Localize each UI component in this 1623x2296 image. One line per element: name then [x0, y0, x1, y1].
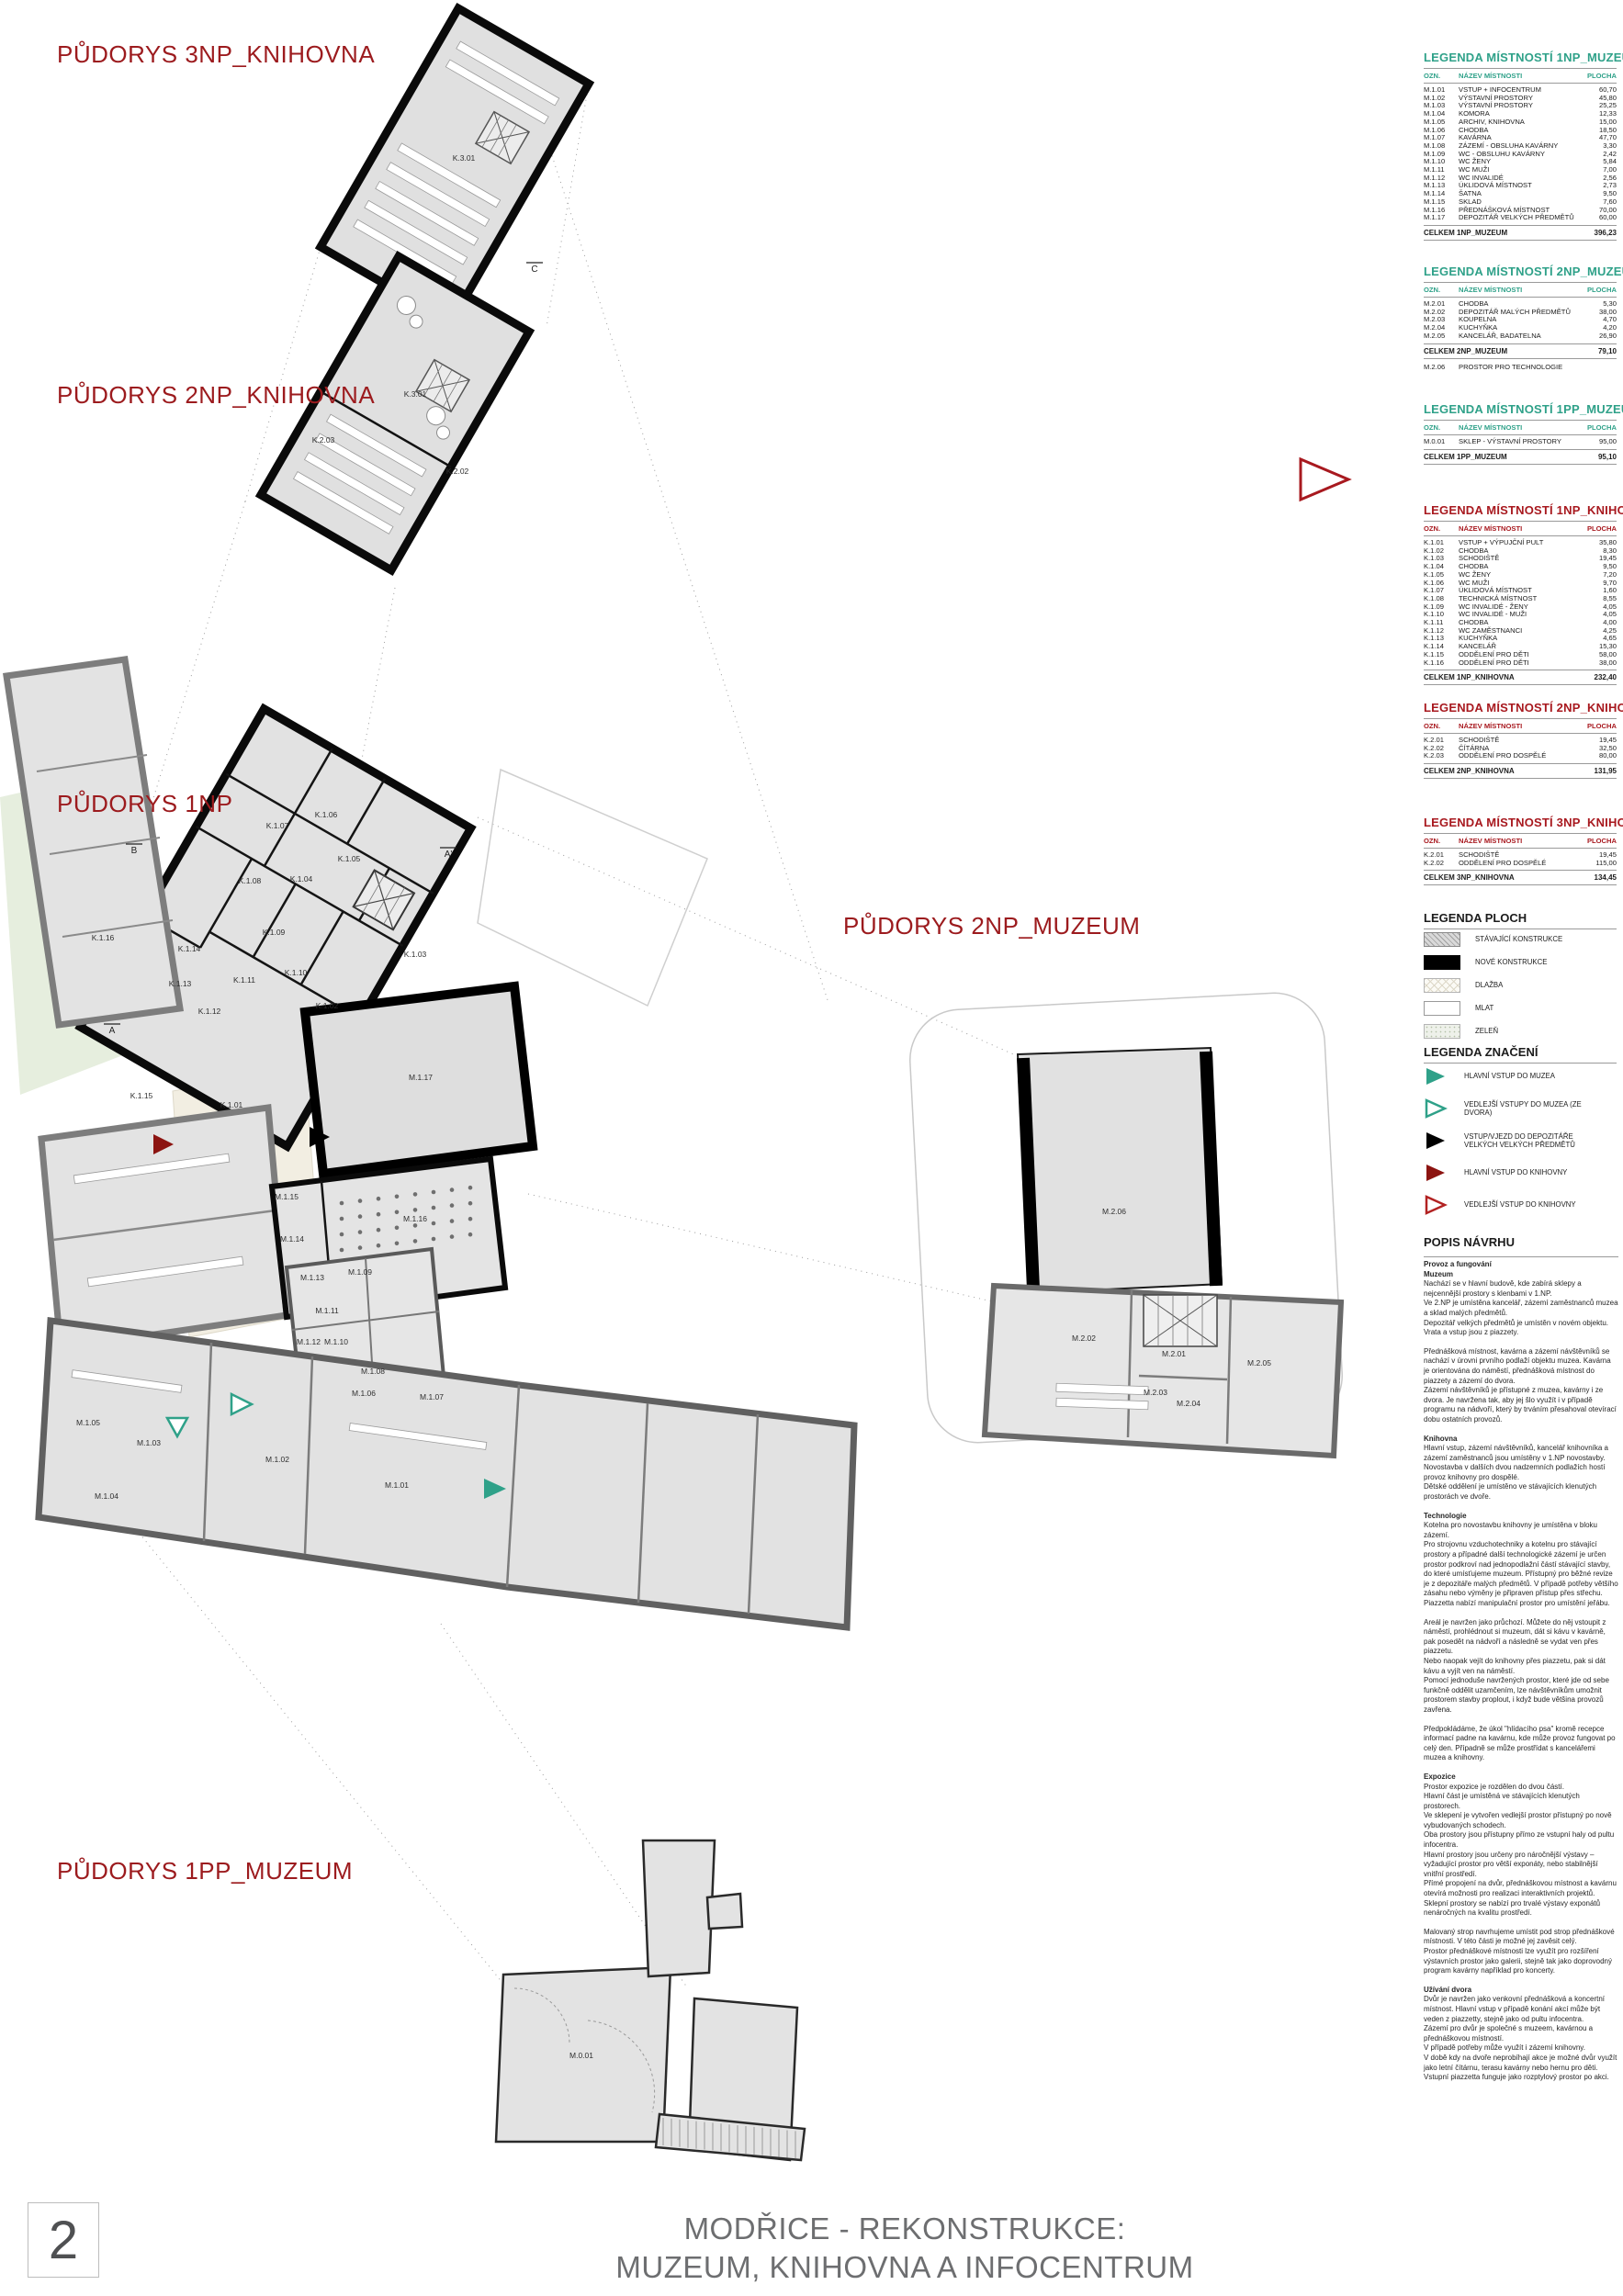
- notes-paragraph: Zázemí pro dvůr je společné s muzeem, ka…: [1424, 2024, 1618, 2043]
- plan-heading: PŮDORYS 3NP_KNIHOVNA: [57, 40, 375, 69]
- table-title: LEGENDA MÍSTNOSTÍ 2NP_MUZEUM: [1424, 264, 1617, 278]
- col-ozn: OZN.: [1424, 423, 1459, 432]
- floor-plans-canvas: K.3.01K.2.02K.3.01K.2.03K.1.06K.1.07K.1.…: [0, 0, 1623, 2296]
- legend-table: LEGENDA MÍSTNOSTÍ 2NP_KNIHOVNAOZN.NÁZEV …: [1424, 701, 1617, 782]
- black-swatch-icon: [1424, 955, 1460, 970]
- room-label: M.2.01: [1162, 1349, 1186, 1358]
- surface-legend-item: DLAŽBA: [1424, 978, 1617, 993]
- total-value: 95,10: [1580, 453, 1617, 461]
- table-title: LEGENDA MÍSTNOSTÍ 1NP_KNIHOVNA: [1424, 503, 1617, 517]
- notes-heading: Technologie: [1424, 1512, 1618, 1522]
- green-swatch-icon: [1424, 1024, 1460, 1039]
- notes-gap: [1424, 1976, 1618, 1986]
- symbol-legend-item: VEDLEJŠÍ VSTUP DO KNIHOVNY: [1424, 1195, 1617, 1215]
- room-code: M.2.06: [1424, 363, 1459, 371]
- total-label: CELKEM 1PP_MUZEUM: [1424, 453, 1580, 461]
- hatch-swatch-icon: [1424, 932, 1460, 947]
- total-label: CELKEM 3NP_KNIHOVNA: [1424, 873, 1580, 882]
- entrance-triangle-icon: [1424, 1163, 1448, 1183]
- table-row: K.1.04CHODBA9,50: [1424, 563, 1617, 571]
- col-plocha: PLOCHA: [1580, 72, 1617, 80]
- symbol-legend-item: VSTUP/VJEZD DO DEPOZITÁŘE VELKÝCH VELKÝC…: [1424, 1131, 1617, 1151]
- notes-gap: [1424, 1763, 1618, 1773]
- surface-legend-label: DLAŽBA: [1475, 981, 1503, 990]
- design-notes: POPIS NÁVRHU Provoz a fungováníMuzeumNac…: [1424, 1235, 1618, 2083]
- entrance-triangle-icon: [1424, 1131, 1448, 1151]
- notes-gap: [1424, 1716, 1618, 1725]
- total-value: 131,95: [1580, 767, 1617, 775]
- room-label: K.1.02: [316, 1001, 339, 1010]
- room-label: M.1.13: [300, 1273, 324, 1282]
- col-nazev: NÁZEV MÍSTNOSTI: [1459, 524, 1580, 533]
- legend-table: LEGENDA MÍSTNOSTÍ 1PP_MUZEUMOZN.NÁZEV MÍ…: [1424, 402, 1617, 467]
- legend-table: LEGENDA MÍSTNOSTÍ 1NP_MUZEUMOZN.NÁZEV MÍ…: [1424, 51, 1617, 243]
- notes-paragraph: Depozitář velkých předmětů je umístěn v …: [1424, 1319, 1618, 1338]
- room-label: M.1.04: [95, 1491, 118, 1501]
- room-label: M.1.05: [76, 1418, 100, 1427]
- table-row: M.2.03KOUPELNA4,70: [1424, 316, 1617, 324]
- room-label: K.1.11: [233, 975, 255, 985]
- notes-paragraph: Nachází se v hlavní budově, kde zabírá s…: [1424, 1279, 1618, 1299]
- surface-legend-item: NOVÉ KONSTRUKCE: [1424, 955, 1617, 970]
- notes-gap: [1424, 1503, 1618, 1512]
- col-nazev: NÁZEV MÍSTNOSTI: [1459, 423, 1580, 432]
- room-code: K.2.03: [1424, 752, 1459, 760]
- room-label: K.1.12: [198, 1007, 221, 1016]
- room-label: M.1.01: [385, 1480, 409, 1490]
- room-name: DEPOZITÁŘ VELKÝCH PŘEDMĚTŮ: [1459, 214, 1580, 222]
- total-label: CELKEM 1NP_KNIHOVNA: [1424, 673, 1580, 681]
- plan-heading: PŮDORYS 2NP_KNIHOVNA: [57, 381, 375, 410]
- room-label: K.1.16: [92, 933, 115, 942]
- notes-paragraph: Hlavní část je umístěná ve stávajících k…: [1424, 1792, 1618, 1811]
- room-label: M.1.12: [297, 1337, 321, 1346]
- room-label: M.1.10: [324, 1337, 348, 1346]
- room-label: K.1.08: [239, 876, 262, 885]
- room-label: M.1.15: [275, 1192, 299, 1201]
- symbol-legend-item: VEDLEJŠÍ VSTUPY DO MUZEA (ZE DVORA): [1424, 1098, 1617, 1119]
- drawing-sheet: K.3.01K.2.02K.3.01K.2.03K.1.06K.1.07K.1.…: [0, 0, 1623, 2296]
- table-total: CELKEM 1NP_MUZEUM396,23: [1424, 229, 1617, 237]
- notes-paragraph: Zázemí návštěvníků je přístupné z muzea,…: [1424, 1386, 1618, 1424]
- room-label: M.2.04: [1177, 1399, 1200, 1408]
- table-row: K.1.01VSTUP + VÝPUJČNÍ PULT35,80: [1424, 539, 1617, 547]
- room-label: K.2.02: [446, 467, 469, 476]
- table-row: M.1.13ÚKLIDOVÁ MÍSTNOST2,73: [1424, 182, 1617, 190]
- room-label: K.3.01: [453, 153, 476, 163]
- notes-paragraph: Malovaný strop navrhujeme umístit pod st…: [1424, 1928, 1618, 1947]
- sheet-number: 2: [28, 2202, 99, 2278]
- table-row: M.1.14ŠATNA9,50: [1424, 190, 1617, 198]
- room-area: 115,00: [1580, 860, 1617, 868]
- table-title: LEGENDA MÍSTNOSTÍ 3NP_KNIHOVNA: [1424, 816, 1617, 829]
- room-label: K.1.13: [169, 979, 192, 988]
- symbol-legend-title: LEGENDA ZNAČENÍ: [1424, 1045, 1617, 1059]
- table-title: LEGENDA MÍSTNOSTÍ 2NP_KNIHOVNA: [1424, 701, 1617, 715]
- col-plocha: PLOCHA: [1580, 286, 1617, 294]
- plan-heading: PŮDORYS 1PP_MUZEUM: [57, 1857, 353, 1885]
- room-label: K.3.01: [404, 389, 427, 399]
- symbol-legend-item: HLAVNÍ VSTUP DO MUZEA: [1424, 1066, 1617, 1086]
- section-marker-letter: A': [445, 850, 453, 860]
- room-code: M.1.17: [1424, 214, 1459, 222]
- notes-paragraph: Oba prostory jsou přístupny přímo ze vst…: [1424, 1830, 1618, 1850]
- notes-paragraph: Dětské oddělení je umístěno ve stávající…: [1424, 1482, 1618, 1502]
- room-code: M.0.01: [1424, 438, 1459, 446]
- col-ozn: OZN.: [1424, 722, 1459, 730]
- herr-swatch-icon: [1424, 978, 1460, 993]
- table-row: M.0.01SKLEP - VÝSTAVNÍ PROSTORY95,00: [1424, 438, 1617, 446]
- notes-heading: Muzeum: [1424, 1270, 1618, 1280]
- notes-paragraph: Předpokládáme, že úkol "hlídacího psa" k…: [1424, 1725, 1618, 1763]
- plan-1pp-muzeum-drawing: [496, 1840, 805, 2160]
- col-ozn: OZN.: [1424, 72, 1459, 80]
- notes-paragraph: Hlavní prostory jsou určeny pro náročněj…: [1424, 1851, 1618, 1880]
- room-label: M.1.09: [348, 1267, 372, 1277]
- col-ozn: OZN.: [1424, 837, 1459, 845]
- room-label: M.1.11: [315, 1306, 339, 1315]
- room-label: K.1.15: [130, 1091, 153, 1100]
- col-ozn: OZN.: [1424, 286, 1459, 294]
- room-label: M.2.06: [1102, 1207, 1126, 1216]
- surface-legend-label: STÁVAJÍCÍ KONSTRUKCE: [1475, 935, 1562, 944]
- col-nazev: NÁZEV MÍSTNOSTI: [1459, 837, 1580, 845]
- room-label: K.2.03: [312, 435, 335, 445]
- surface-legend-item: STÁVAJÍCÍ KONSTRUKCE: [1424, 932, 1617, 947]
- room-label: M.1.17: [409, 1073, 433, 1082]
- room-label: K.1.07: [266, 821, 289, 830]
- total-value: 79,10: [1580, 347, 1617, 355]
- table-row: K.1.03SCHODIŠTĚ19,45: [1424, 555, 1617, 563]
- notes-paragraph: Areál je navržen jako průchozí. Můžete d…: [1424, 1618, 1618, 1657]
- notes-paragraph: Ve sklepení je vytvořen vedlejší prostor…: [1424, 1811, 1618, 1830]
- room-label: M.1.02: [265, 1455, 289, 1464]
- notes-gap: [1424, 1425, 1618, 1435]
- surface-legend-label: NOVÉ KONSTRUKCE: [1475, 958, 1547, 967]
- room-label: M.2.02: [1072, 1334, 1096, 1343]
- table-row: K.1.12WC ZAMĚSTNANCI4,25: [1424, 627, 1617, 636]
- table-total: CELKEM 2NP_KNIHOVNA131,95: [1424, 767, 1617, 775]
- table-total: CELKEM 1NP_KNIHOVNA232,40: [1424, 673, 1617, 681]
- stair-core: [1144, 1295, 1217, 1346]
- room-label: M.1.08: [361, 1367, 385, 1376]
- table-row: M.2.05KANCELÁŘ, BADATELNA26,90: [1424, 332, 1617, 341]
- table-row: M.1.17DEPOZITÁŘ VELKÝCH PŘEDMĚTŮ60,00: [1424, 214, 1617, 222]
- table-row: K.1.16ODDĚLENÍ PRO DĚTI38,00: [1424, 659, 1617, 668]
- table-row: M.1.11WC MUŽI7,00: [1424, 166, 1617, 174]
- table-title: LEGENDA MÍSTNOSTÍ 1NP_MUZEUM: [1424, 51, 1617, 64]
- neighbour-building-outline: [478, 770, 707, 1006]
- total-value: 396,23: [1580, 229, 1617, 237]
- surface-legend-title: LEGENDA PLOCH: [1424, 911, 1617, 925]
- notes-paragraph: Dvůr je navržen jako venkovní přednáškov…: [1424, 1995, 1618, 2024]
- room-area: 60,00: [1580, 214, 1617, 222]
- legend-table: LEGENDA MÍSTNOSTÍ 1NP_KNIHOVNAOZN.NÁZEV …: [1424, 503, 1617, 688]
- room-label: K.1.14: [178, 944, 201, 953]
- room-name: PROSTOR PRO TECHNOLOGIE: [1459, 363, 1580, 371]
- notes-paragraph: Pomocí jednoduše navržených prostor, kte…: [1424, 1676, 1618, 1715]
- total-label: CELKEM 2NP_KNIHOVNA: [1424, 767, 1580, 775]
- notes-paragraph: Prostor expozice je rozdělen do dvou čás…: [1424, 1783, 1618, 1793]
- project-title-line1: MODŘICE - REKONSTRUKCE:: [445, 2210, 1364, 2248]
- room-label: M.1.06: [352, 1389, 376, 1398]
- room-area: 95,00: [1580, 438, 1617, 446]
- room-area: 38,00: [1580, 659, 1617, 668]
- notes-gap: [1424, 1609, 1618, 1618]
- notes-paragraph: Přímé propojení na dvůr, přednáškovou mí…: [1424, 1879, 1618, 1898]
- col-plocha: PLOCHA: [1580, 837, 1617, 845]
- col-plocha: PLOCHA: [1580, 524, 1617, 533]
- table-extra-row: M.2.06PROSTOR PRO TECHNOLOGIE: [1424, 363, 1617, 371]
- notes-paragraph: Pro strojovnu vzduchotechniky a kotelnu …: [1424, 1540, 1618, 1608]
- table-row: M.1.10WC ŽENY5,84: [1424, 158, 1617, 166]
- table-total: CELKEM 2NP_MUZEUM79,10: [1424, 347, 1617, 355]
- legend-table: LEGENDA MÍSTNOSTÍ 3NP_KNIHOVNAOZN.NÁZEV …: [1424, 816, 1617, 888]
- section-marker-letter: C: [531, 264, 537, 275]
- symbol-legend: LEGENDA ZNAČENÍ HLAVNÍ VSTUP DO MUZEAVED…: [1424, 1045, 1617, 1227]
- room-name: ODDĚLENÍ PRO DOSPĚLÉ: [1459, 860, 1580, 868]
- table-row: M.1.06CHODBA18,50: [1424, 127, 1617, 135]
- section-marker-letter: B: [131, 846, 138, 856]
- table-title: LEGENDA MÍSTNOSTÍ 1PP_MUZEUM: [1424, 402, 1617, 416]
- notes-gap: [1424, 1338, 1618, 1347]
- surface-legend: LEGENDA PLOCH STÁVAJÍCÍ KONSTRUKCENOVÉ K…: [1424, 911, 1617, 1047]
- side-library-entrance-marker: [1301, 459, 1348, 500]
- notes-gap: [1424, 1919, 1618, 1928]
- notes-paragraph: Přednášková místnost, kavárna a zázemí n…: [1424, 1347, 1618, 1386]
- symbol-legend-label: HLAVNÍ VSTUP DO MUZEA: [1464, 1072, 1602, 1081]
- symbol-legend-label: VEDLEJŠÍ VSTUPY DO MUZEA (ZE DVORA): [1464, 1100, 1602, 1118]
- col-nazev: NÁZEV MÍSTNOSTI: [1459, 286, 1580, 294]
- room-name: ODDĚLENÍ PRO DĚTI: [1459, 659, 1580, 668]
- table-row: K.1.10WC INVALIDÉ - MUŽI4,05: [1424, 611, 1617, 619]
- plan-heading: PŮDORYS 2NP_MUZEUM: [843, 912, 1140, 940]
- room-label: M.1.16: [403, 1214, 427, 1223]
- room-label: K.1.10: [285, 968, 308, 977]
- room-label: M.2.03: [1144, 1388, 1167, 1397]
- notes-paragraph: V době kdy na dvoře neprobíhají akce je …: [1424, 2054, 1618, 2073]
- section-marker-letter: A: [109, 1026, 116, 1036]
- notes-paragraph: Prostor přednáškové místnosti lze využít…: [1424, 1947, 1618, 1976]
- notes-heading: Užívání dvora: [1424, 1986, 1618, 1996]
- entrance-triangle-icon: [1424, 1066, 1448, 1086]
- room-label: K.1.05: [338, 854, 361, 863]
- notes-paragraph: Sklepní prostory se nabízí pro trvalé vý…: [1424, 1899, 1618, 1919]
- room-area: 26,90: [1580, 332, 1617, 341]
- project-title-line2: MUZEUM, KNIHOVNA A INFOCENTRUM: [445, 2248, 1364, 2287]
- plan-2np-knihovna-drawing: [261, 256, 529, 570]
- table-total: CELKEM 3NP_KNIHOVNA134,45: [1424, 873, 1617, 882]
- total-value: 232,40: [1580, 673, 1617, 681]
- col-plocha: PLOCHA: [1580, 423, 1617, 432]
- symbol-legend-item: HLAVNÍ VSTUP DO KNIHOVNY: [1424, 1163, 1617, 1183]
- table-row: K.2.03ODDĚLENÍ PRO DOSPĚLÉ80,00: [1424, 752, 1617, 760]
- room-name: ODDĚLENÍ PRO DOSPĚLÉ: [1459, 752, 1580, 760]
- entrance-triangle-icon: [1424, 1195, 1448, 1215]
- col-nazev: NÁZEV MÍSTNOSTI: [1459, 72, 1580, 80]
- table-total: CELKEM 1PP_MUZEUM95,10: [1424, 453, 1617, 461]
- notes-paragraph: Vstupní piazzetta funguje jako rozptylov…: [1424, 2073, 1618, 2083]
- col-nazev: NÁZEV MÍSTNOSTI: [1459, 722, 1580, 730]
- total-value: 134,45: [1580, 873, 1617, 882]
- notes-heading: Provoz a fungování: [1424, 1260, 1618, 1270]
- plan-1np-museum-main-building: [39, 1321, 854, 1627]
- room-area: 80,00: [1580, 752, 1617, 760]
- room-label: K.1.06: [315, 810, 338, 819]
- table-row: M.1.03VÝSTAVNÍ PROSTORY25,25: [1424, 102, 1617, 110]
- white-swatch-icon: [1424, 1001, 1460, 1016]
- room-label: K.1.09: [263, 928, 286, 937]
- plan-heading: PŮDORYS 1NP: [57, 790, 232, 818]
- table-row: K.1.05WC ŽENY7,20: [1424, 571, 1617, 580]
- room-label: K.1.04: [290, 874, 313, 884]
- surface-legend-label: ZELEŇ: [1475, 1027, 1498, 1036]
- room-code: K.1.16: [1424, 659, 1459, 668]
- title-block: MODŘICE - REKONSTRUKCE: MUZEUM, KNIHOVNA…: [445, 2210, 1364, 2287]
- notes-heading: Expozice: [1424, 1773, 1618, 1783]
- symbol-legend-label: HLAVNÍ VSTUP DO KNIHOVNY: [1464, 1168, 1602, 1177]
- entrance-triangle-icon: [1424, 1098, 1448, 1119]
- col-ozn: OZN.: [1424, 524, 1459, 533]
- room-label: M.1.07: [420, 1392, 444, 1401]
- room-label: M.2.05: [1247, 1358, 1271, 1367]
- table-row: K.2.01SCHODIŠTĚ19,45: [1424, 737, 1617, 745]
- legend-table: LEGENDA MÍSTNOSTÍ 2NP_MUZEUMOZN.NÁZEV MÍ…: [1424, 264, 1617, 371]
- room-label: K.1.03: [404, 950, 427, 959]
- symbol-legend-label: VEDLEJŠÍ VSTUP DO KNIHOVNY: [1464, 1200, 1602, 1210]
- room-name: SKLEP - VÝSTAVNÍ PROSTORY: [1459, 438, 1580, 446]
- table-row: M.1.09WC - OBSLUHU KAVÁRNY2,42: [1424, 151, 1617, 159]
- table-row: M.1.05ARCHIV, KNIHOVNA15,00: [1424, 118, 1617, 127]
- table-row: K.1.02CHODBA8,30: [1424, 547, 1617, 556]
- notes-heading: Knihovna: [1424, 1435, 1618, 1445]
- total-label: CELKEM 2NP_MUZEUM: [1424, 347, 1580, 355]
- notes-paragraph: Hlavní vstup, zázemí návštěvníků, kancel…: [1424, 1444, 1618, 1463]
- symbol-legend-label: VSTUP/VJEZD DO DEPOZITÁŘE VELKÝCH VELKÝC…: [1464, 1132, 1602, 1150]
- room-label: M.1.03: [137, 1438, 161, 1447]
- notes-paragraph: Nebo naopak vejít do knihovny přes piazz…: [1424, 1657, 1618, 1676]
- room-label: M.1.14: [280, 1234, 304, 1244]
- notes-paragraph: Novostavba v dalších dvou nadzemních pod…: [1424, 1463, 1618, 1482]
- notes-paragraph: Ve 2.NP je umístěna kancelář, zázemí zam…: [1424, 1299, 1618, 1318]
- room-label: M.0.01: [569, 2051, 593, 2060]
- table-row: K.1.13KUCHYŇKA4,65: [1424, 635, 1617, 643]
- surface-legend-label: MLAT: [1475, 1004, 1493, 1013]
- design-notes-title: POPIS NÁVRHU: [1424, 1235, 1618, 1249]
- room-label: K.1.01: [220, 1100, 243, 1109]
- col-plocha: PLOCHA: [1580, 722, 1617, 730]
- notes-paragraph: Kotelna pro novostavbu knihovny je umíst…: [1424, 1521, 1618, 1540]
- room-code: K.2.02: [1424, 860, 1459, 868]
- table-row: K.2.02ODDĚLENÍ PRO DOSPĚLÉ115,00: [1424, 860, 1617, 868]
- surface-legend-item: MLAT: [1424, 1001, 1617, 1016]
- surface-legend-item: ZELEŇ: [1424, 1024, 1617, 1039]
- notes-paragraph: V případě potřeby může využít i zázemí k…: [1424, 2043, 1618, 2054]
- total-label: CELKEM 1NP_MUZEUM: [1424, 229, 1580, 237]
- room-code: M.2.05: [1424, 332, 1459, 341]
- table-row: M.2.02DEPOZITÁŘ MALÝCH PŘEDMĚTŮ38,00: [1424, 309, 1617, 317]
- room-name: KANCELÁŘ, BADATELNA: [1459, 332, 1580, 341]
